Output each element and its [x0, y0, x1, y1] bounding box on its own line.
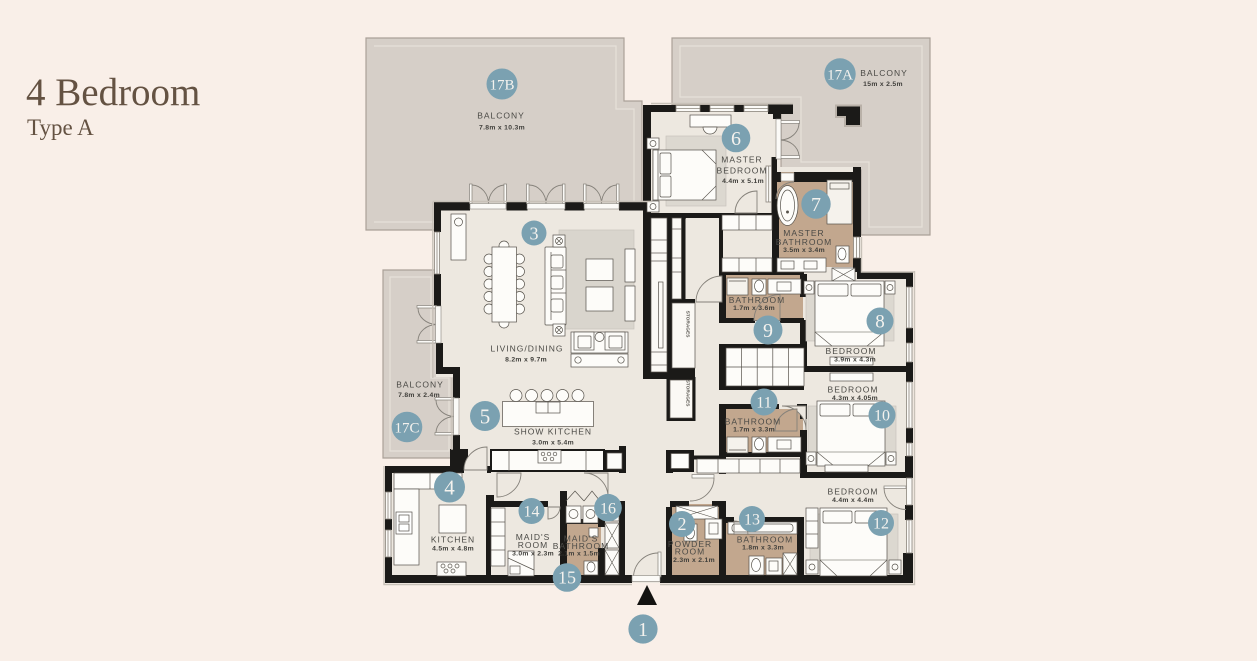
svg-text:BEDROOM: BEDROOM	[826, 346, 877, 356]
svg-text:BATHROOM: BATHROOM	[737, 535, 793, 545]
svg-text:13: 13	[744, 512, 760, 529]
svg-text:7.8m x 2.4m: 7.8m x 2.4m	[398, 392, 440, 399]
svg-text:SHOW KITCHEN: SHOW KITCHEN	[514, 427, 592, 437]
svg-text:BATHROOM: BATHROOM	[553, 541, 609, 551]
svg-text:4: 4	[444, 476, 455, 500]
svg-text:BATHROOM: BATHROOM	[776, 237, 832, 247]
svg-text:7.8m x 10.3m: 7.8m x 10.3m	[479, 125, 525, 132]
svg-text:ROOM: ROOM	[518, 540, 548, 550]
svg-text:4.5m x 4.8m: 4.5m x 4.8m	[432, 546, 474, 553]
svg-text:3.0m x 2.3m: 3.0m x 2.3m	[512, 551, 554, 558]
svg-text:12: 12	[873, 516, 889, 533]
svg-text:3.9m x 4.3m: 3.9m x 4.3m	[834, 357, 876, 364]
svg-text:STORAGES: STORAGES	[685, 380, 691, 408]
svg-text:2.3m x 2.1m: 2.3m x 2.1m	[673, 557, 715, 564]
svg-text:1.8m x 3.3m: 1.8m x 3.3m	[742, 545, 784, 552]
svg-text:17A: 17A	[827, 68, 853, 84]
svg-text:16: 16	[600, 501, 616, 518]
svg-text:STORAGES: STORAGES	[685, 311, 691, 339]
svg-text:Type A: Type A	[27, 115, 94, 140]
svg-text:2: 2	[678, 514, 687, 534]
svg-text:BATHROOM: BATHROOM	[729, 295, 785, 305]
svg-text:BALCONY: BALCONY	[477, 111, 525, 121]
svg-text:10: 10	[874, 408, 890, 425]
svg-text:15m x 2.5m: 15m x 2.5m	[863, 81, 903, 88]
svg-text:MASTER: MASTER	[721, 155, 762, 165]
svg-text:1.7m x 3.3m: 1.7m x 3.3m	[733, 427, 775, 434]
svg-text:1.7m x 3.6m: 1.7m x 3.6m	[733, 305, 775, 312]
svg-text:11: 11	[756, 395, 771, 412]
svg-text:3.0m x 5.4m: 3.0m x 5.4m	[532, 440, 574, 447]
svg-text:9: 9	[763, 320, 773, 342]
svg-text:BEDROOM: BEDROOM	[828, 487, 879, 497]
svg-text:3.5m x 3.4m: 3.5m x 3.4m	[783, 247, 825, 254]
svg-text:KITCHEN: KITCHEN	[431, 535, 475, 545]
svg-text:8: 8	[875, 312, 885, 333]
svg-text:5: 5	[480, 405, 491, 429]
svg-text:BALCONY: BALCONY	[860, 68, 908, 78]
svg-text:BEDROOM: BEDROOM	[828, 385, 879, 395]
svg-text:BATHROOM: BATHROOM	[725, 417, 781, 427]
svg-text:4.4m x 4.4m: 4.4m x 4.4m	[832, 497, 874, 504]
svg-text:4.3m x 4.05m: 4.3m x 4.05m	[832, 395, 878, 402]
svg-text:17C: 17C	[394, 421, 419, 437]
svg-text:7: 7	[811, 194, 821, 216]
svg-text:2.1m x 1.5m: 2.1m x 1.5m	[558, 551, 600, 558]
svg-text:4.4m x 5.1m: 4.4m x 5.1m	[722, 178, 764, 185]
svg-text:15: 15	[558, 568, 576, 588]
svg-text:8.2m x 9.7m: 8.2m x 9.7m	[505, 357, 547, 364]
svg-text:BALCONY: BALCONY	[396, 380, 444, 390]
svg-text:LIVING/DINING: LIVING/DINING	[491, 344, 564, 354]
svg-text:1: 1	[638, 619, 648, 641]
svg-text:4 Bedroom: 4 Bedroom	[26, 71, 200, 114]
svg-text:6: 6	[731, 128, 741, 150]
svg-text:ROOM: ROOM	[675, 547, 705, 557]
svg-text:14: 14	[524, 504, 540, 521]
svg-text:3: 3	[530, 224, 539, 244]
svg-text:17B: 17B	[489, 78, 514, 94]
svg-text:BEDROOM: BEDROOM	[717, 166, 768, 176]
